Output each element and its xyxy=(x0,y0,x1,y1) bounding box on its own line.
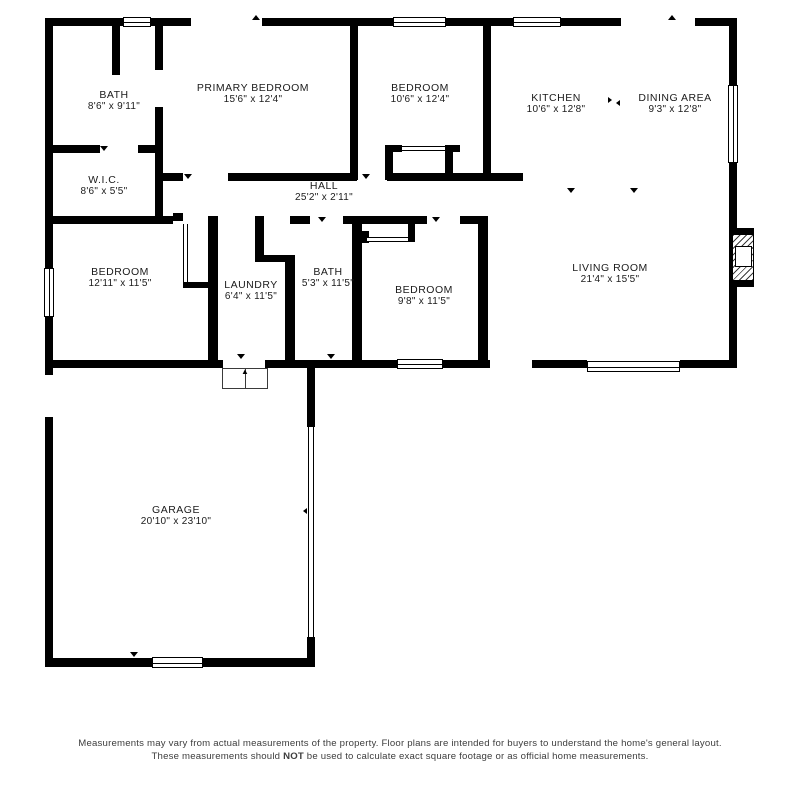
wall xyxy=(532,360,587,368)
wall xyxy=(363,216,427,224)
wall xyxy=(561,18,621,26)
closet-door xyxy=(402,146,445,151)
tick-mark xyxy=(252,15,260,20)
wall xyxy=(112,25,120,75)
tick-mark xyxy=(237,354,245,359)
disclaimer-not: NOT xyxy=(283,751,304,762)
closet-wall xyxy=(408,223,415,242)
fireplace-cap xyxy=(733,280,754,287)
tick-mark xyxy=(100,146,108,151)
thin-wall xyxy=(308,427,314,637)
tick-mark xyxy=(184,174,192,179)
room-label-living-room: LIVING ROOM 21'4" x 15'5" xyxy=(530,262,690,286)
room-name: HALL xyxy=(244,180,404,192)
room-label-garage: GARAGE 20'10" x 23'10" xyxy=(96,504,256,528)
window xyxy=(123,17,151,27)
room-dims: 9'3" x 12'8" xyxy=(595,104,755,116)
room-dims: 21'4" x 15'5" xyxy=(530,274,690,286)
room-name: W.I.C. xyxy=(24,174,184,186)
tick-mark xyxy=(668,15,676,20)
room-name: BEDROOM xyxy=(344,284,504,296)
wall xyxy=(307,368,315,427)
room-label-bedroom-lower: BEDROOM 9'8" x 11'5" xyxy=(344,284,504,308)
wall xyxy=(290,216,310,224)
wall xyxy=(45,658,152,667)
room-label-dining-area: DINING AREA 9'3" x 12'8" xyxy=(595,92,755,116)
room-dims: 20'10" x 23'10" xyxy=(96,516,256,528)
wall xyxy=(45,18,53,268)
window xyxy=(587,361,680,372)
wall xyxy=(138,145,163,153)
steps-up-arrow: ▲ xyxy=(241,367,249,376)
room-name: LIVING ROOM xyxy=(530,262,690,274)
wall xyxy=(45,360,223,368)
wall xyxy=(173,213,183,221)
room-label-bath-upper: BATH 8'6" x 9'11" xyxy=(34,89,194,113)
wall xyxy=(387,173,523,181)
tick-mark xyxy=(327,354,335,359)
tick-mark xyxy=(130,652,138,657)
floor-plan: ▲ BATH 8'6" x 9'11" PRIMARY BEDROOM 15'6… xyxy=(0,0,800,800)
room-label-wic: W.I.C. 8'6" x 5'5" xyxy=(24,174,184,198)
tick-mark xyxy=(303,508,307,514)
room-dims: 6'4" x 11'5" xyxy=(171,291,331,303)
room-dims: 15'6" x 12'4" xyxy=(173,94,333,106)
wall xyxy=(680,360,737,368)
tick-mark xyxy=(362,174,370,179)
wall xyxy=(446,18,513,26)
wall xyxy=(45,417,53,667)
wall xyxy=(155,18,163,70)
entry-steps: ▲ xyxy=(222,368,268,389)
tick-mark xyxy=(212,304,216,310)
disclaimer-after: be used to calculate exact square footag… xyxy=(304,751,649,762)
room-label-primary-bedroom: PRIMARY BEDROOM 15'6" x 12'4" xyxy=(173,82,333,106)
window xyxy=(393,17,446,27)
wall xyxy=(307,637,315,667)
room-name: PRIMARY BEDROOM xyxy=(173,82,333,94)
room-name: BATH xyxy=(248,266,408,278)
room-name: DINING AREA xyxy=(595,92,755,104)
window xyxy=(513,17,561,27)
room-dims: 9'8" x 11'5" xyxy=(344,296,504,308)
tick-mark xyxy=(432,217,440,222)
wall xyxy=(203,658,315,667)
room-label-hall: HALL 25'2" x 2'11" xyxy=(244,180,404,204)
fireplace-cap xyxy=(733,228,754,235)
wall xyxy=(45,145,100,153)
wall xyxy=(45,216,173,224)
room-name: BEDROOM xyxy=(40,266,200,278)
fireplace-insert xyxy=(735,246,752,267)
tick-mark xyxy=(567,188,575,193)
room-dims: 8'6" x 9'11" xyxy=(34,101,194,113)
closet-wall xyxy=(445,145,453,180)
room-dims: 25'2" x 2'11" xyxy=(244,192,404,204)
room-dims: 8'6" x 5'5" xyxy=(24,186,184,198)
closet-wall xyxy=(385,145,393,180)
tick-mark xyxy=(318,217,326,222)
room-name: BATH xyxy=(34,89,194,101)
window xyxy=(397,359,443,369)
wall xyxy=(729,18,737,85)
disclaimer-text: Measurements may vary from actual measur… xyxy=(70,737,730,763)
wall xyxy=(155,107,163,224)
tick-mark xyxy=(630,188,638,193)
wall xyxy=(262,18,393,26)
window xyxy=(152,657,203,668)
room-name: GARAGE xyxy=(96,504,256,516)
closet-door xyxy=(367,237,408,242)
